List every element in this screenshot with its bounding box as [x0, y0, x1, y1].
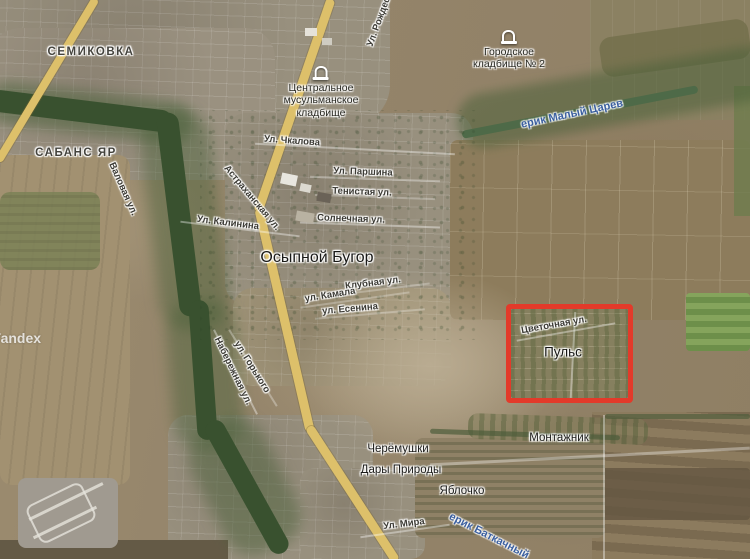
cemetery-label: кладбище № 2 — [473, 58, 545, 70]
cemetery-icon — [501, 30, 517, 44]
cemetery-label: кладбище — [296, 107, 345, 119]
street-line — [603, 415, 605, 559]
settlement-label-semikovka[interactable]: СЕМИКОВКА — [48, 46, 135, 58]
cemetery-label: Городское — [484, 46, 534, 58]
hedgerow-line — [605, 414, 750, 419]
green-strip-right-edge — [734, 86, 750, 216]
poi-city-cemetery[interactable]: Городское кладбище № 2 — [473, 30, 545, 71]
settlement-label-osypnoy-bugor[interactable]: Осыпной Бугор — [260, 249, 373, 267]
poi-muslim-cemetery[interactable]: Центральное мусульманское кладбище — [284, 66, 359, 119]
poi-label-dary-prirody[interactable]: Дары Природы — [361, 464, 442, 476]
street-label-tenistaya: Тенистая ул. — [332, 185, 392, 198]
cemetery-label: Центральное — [289, 82, 354, 94]
poi-label-montazhnik[interactable]: Монтажник — [529, 432, 589, 444]
settlement-label-sabans-yar[interactable]: САБАНС ЯР — [35, 147, 117, 159]
satellite-map-canvas[interactable]: СЕМИКОВКА САБАНС ЯР Осыпной Бугор Городс… — [0, 0, 750, 559]
field-dark-bottom-right — [600, 468, 750, 520]
street-label-solnechnaya: Солнечная ул. — [317, 212, 385, 225]
cemetery-label: мусульманское — [284, 94, 359, 106]
poi-label-puls[interactable]: Пульс — [544, 345, 582, 360]
building — [305, 28, 317, 36]
yandex-watermark: Yandex — [0, 330, 41, 346]
field-green-left — [0, 192, 100, 270]
fields-green-right-edge — [686, 293, 750, 351]
cemetery-icon — [313, 66, 329, 80]
poi-label-cheryomushki[interactable]: Черёмушки — [367, 443, 428, 455]
street-label-parshina: Ул. Паршина — [333, 165, 393, 178]
poi-label-yablochko[interactable]: Яблочко — [440, 485, 485, 497]
building — [322, 38, 332, 45]
